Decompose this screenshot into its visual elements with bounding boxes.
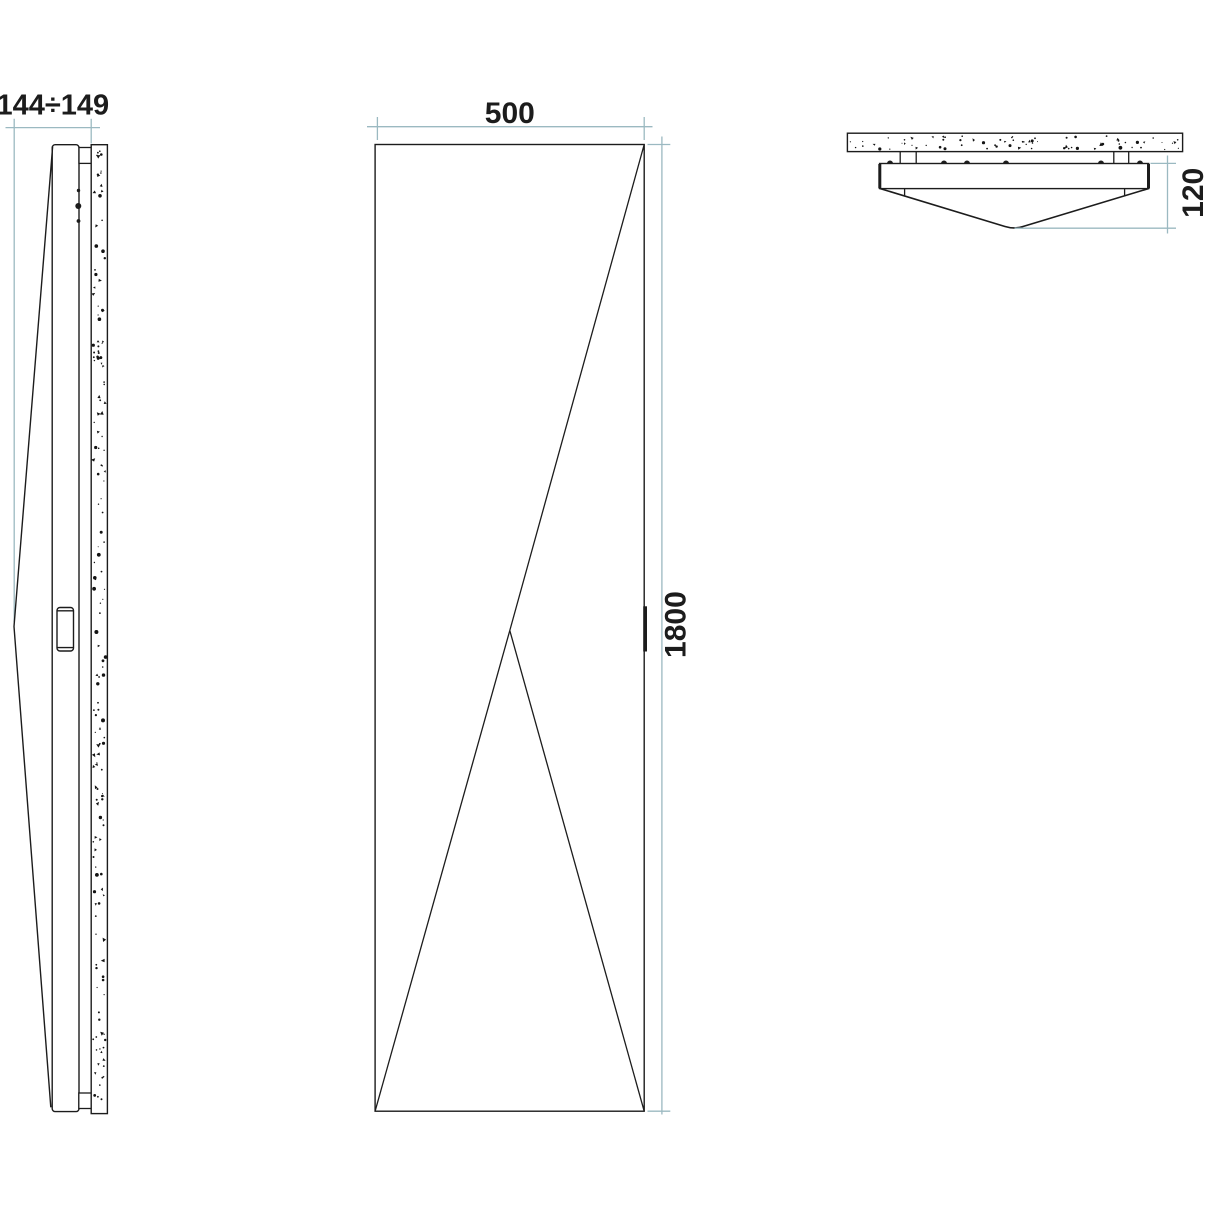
svg-text:144÷149: 144÷149 <box>0 90 109 122</box>
svg-text:500: 500 <box>485 97 535 130</box>
svg-text:120: 120 <box>1177 168 1210 218</box>
svg-text:1800: 1800 <box>659 591 692 658</box>
